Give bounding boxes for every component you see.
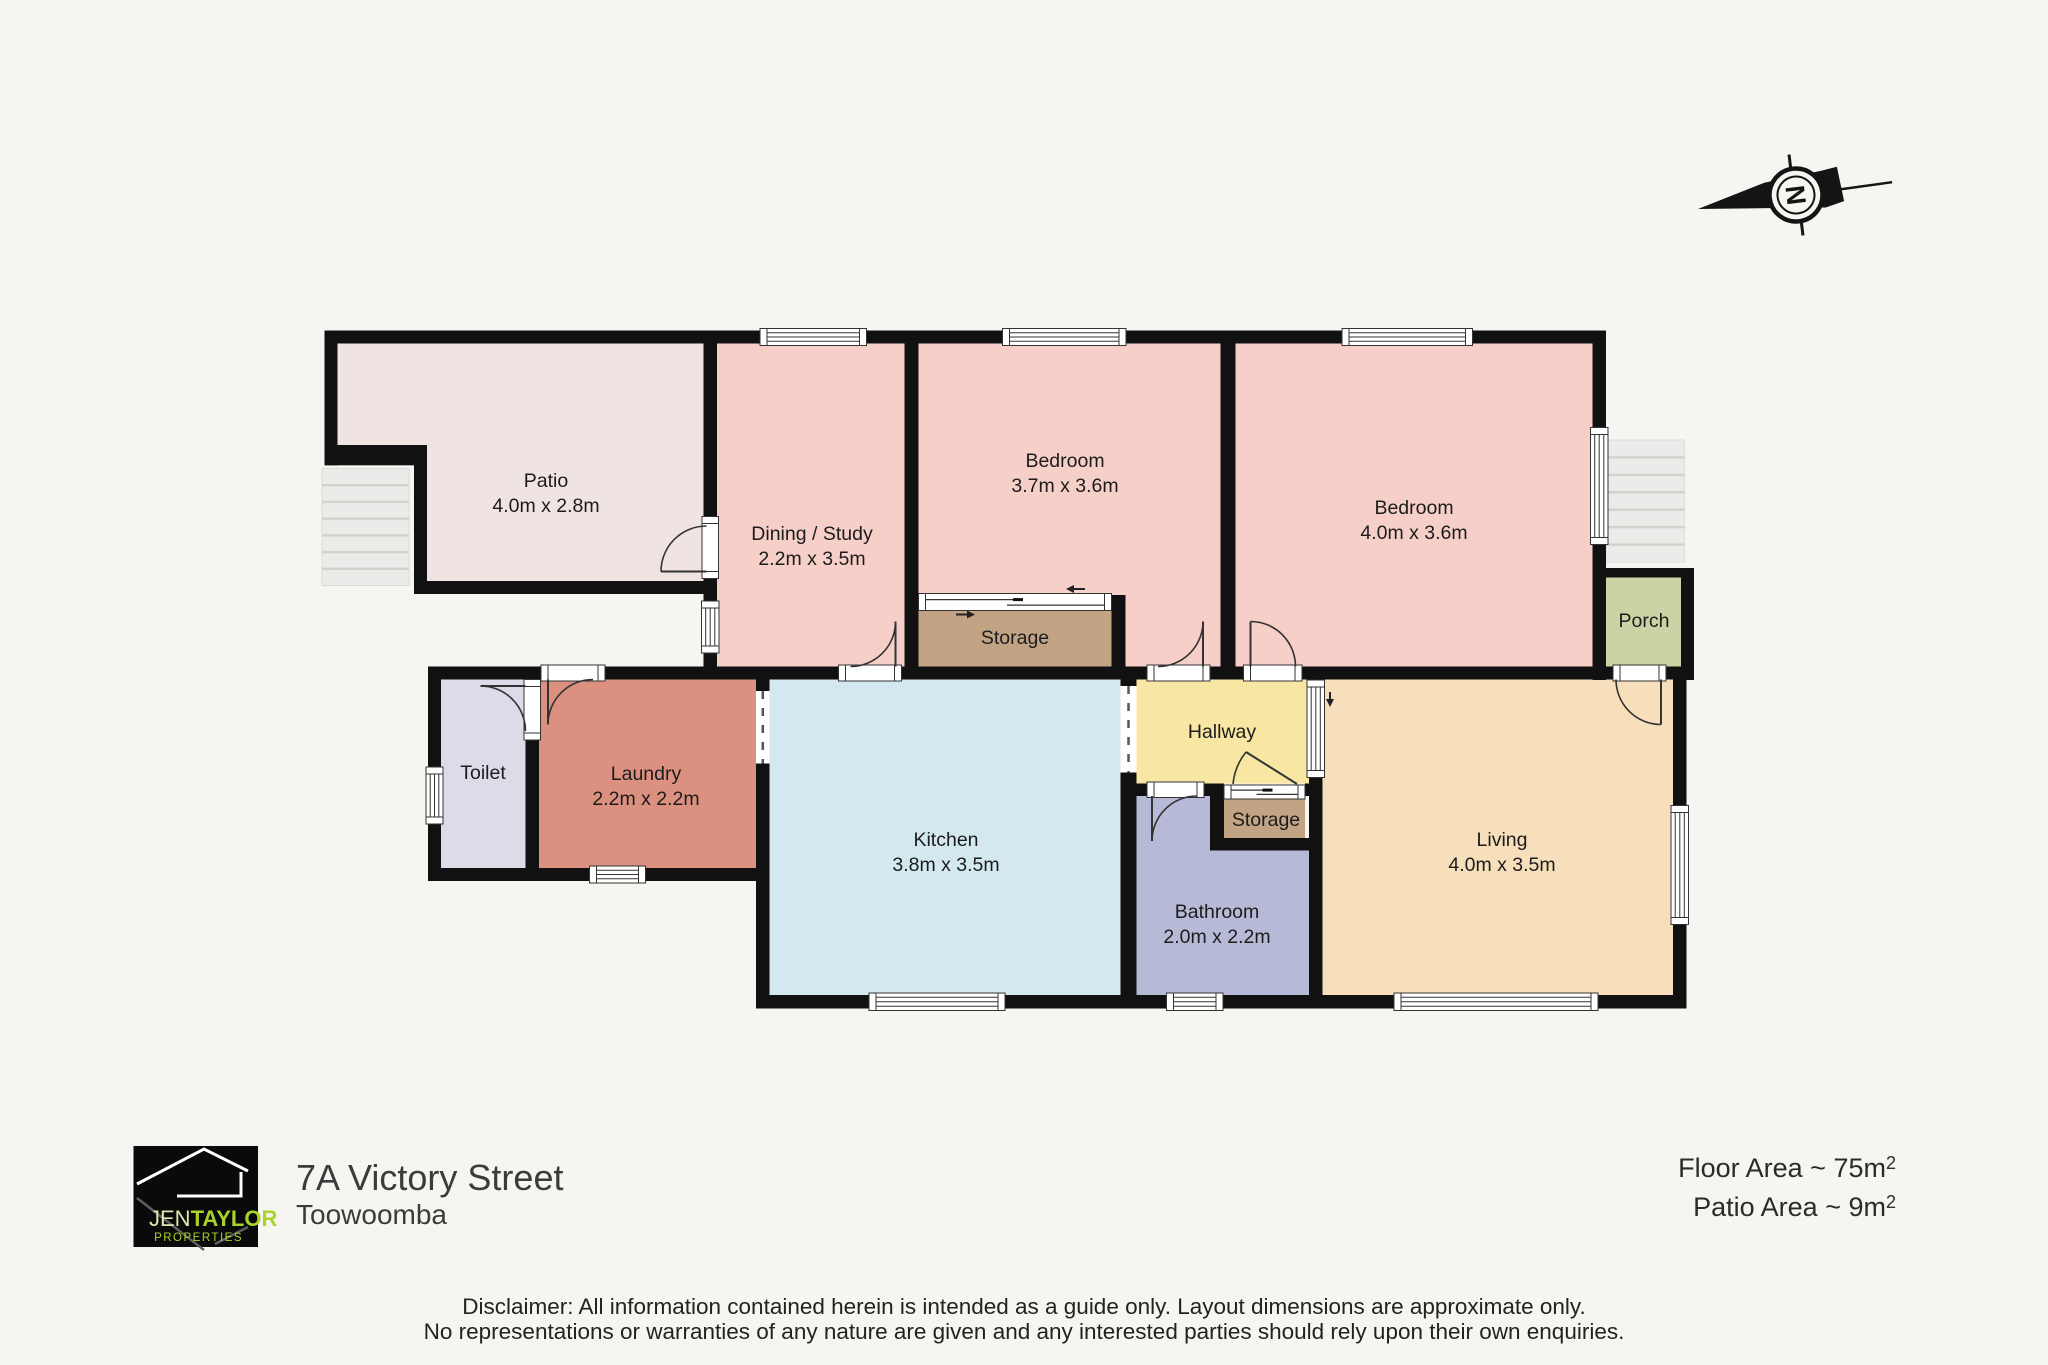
svg-text:Dining / Study: Dining / Study	[751, 523, 873, 545]
svg-text:2.0m x 2.2m: 2.0m x 2.2m	[1163, 926, 1270, 948]
svg-text:2.2m x 2.2m: 2.2m x 2.2m	[592, 788, 699, 810]
svg-text:Toowoomba: Toowoomba	[296, 1199, 447, 1230]
svg-text:Bathroom: Bathroom	[1175, 901, 1260, 923]
svg-text:JENTAYLOR: JENTAYLOR	[149, 1206, 277, 1231]
svg-text:Hallway: Hallway	[1188, 721, 1257, 743]
svg-text:Storage: Storage	[1232, 809, 1300, 831]
svg-text:Floor Area ~ 75m2: Floor Area ~ 75m2	[1678, 1153, 1896, 1183]
svg-text:Kitchen: Kitchen	[913, 829, 978, 851]
svg-text:No representations or warranti: No representations or warranties of any …	[424, 1319, 1625, 1344]
svg-text:PROPERTIES: PROPERTIES	[154, 1232, 243, 1244]
svg-text:Porch: Porch	[1619, 610, 1670, 632]
svg-text:4.0m x 3.6m: 4.0m x 3.6m	[1360, 522, 1467, 544]
svg-text:Living: Living	[1477, 829, 1528, 851]
svg-text:Bedroom: Bedroom	[1374, 497, 1453, 519]
svg-text:Bedroom: Bedroom	[1025, 450, 1104, 472]
svg-text:Laundry: Laundry	[611, 763, 682, 785]
svg-text:4.0m x 3.5m: 4.0m x 3.5m	[1448, 854, 1555, 876]
svg-text:7A Victory Street: 7A Victory Street	[296, 1157, 563, 1198]
svg-text:Toilet: Toilet	[460, 762, 506, 784]
svg-text:N: N	[1780, 183, 1812, 206]
svg-text:Patio: Patio	[524, 470, 569, 492]
svg-text:Disclaimer: All information co: Disclaimer: All information contained he…	[462, 1294, 1586, 1319]
svg-text:4.0m x 2.8m: 4.0m x 2.8m	[492, 495, 599, 517]
svg-text:3.8m x 3.5m: 3.8m x 3.5m	[892, 854, 999, 876]
svg-text:Patio Area ~ 9m2: Patio Area ~ 9m2	[1693, 1192, 1896, 1222]
svg-text:3.7m x 3.6m: 3.7m x 3.6m	[1011, 475, 1118, 497]
svg-text:Storage: Storage	[981, 627, 1049, 649]
svg-text:2.2m x 3.5m: 2.2m x 3.5m	[758, 548, 865, 570]
